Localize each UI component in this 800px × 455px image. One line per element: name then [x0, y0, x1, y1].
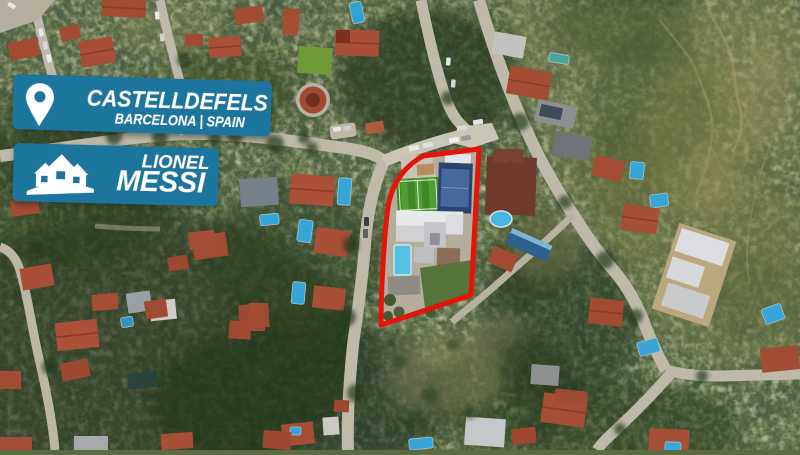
svg-text:CASTELLDEFELS: CASTELLDEFELS: [86, 85, 268, 116]
svg-text:MESSI: MESSI: [116, 165, 207, 199]
